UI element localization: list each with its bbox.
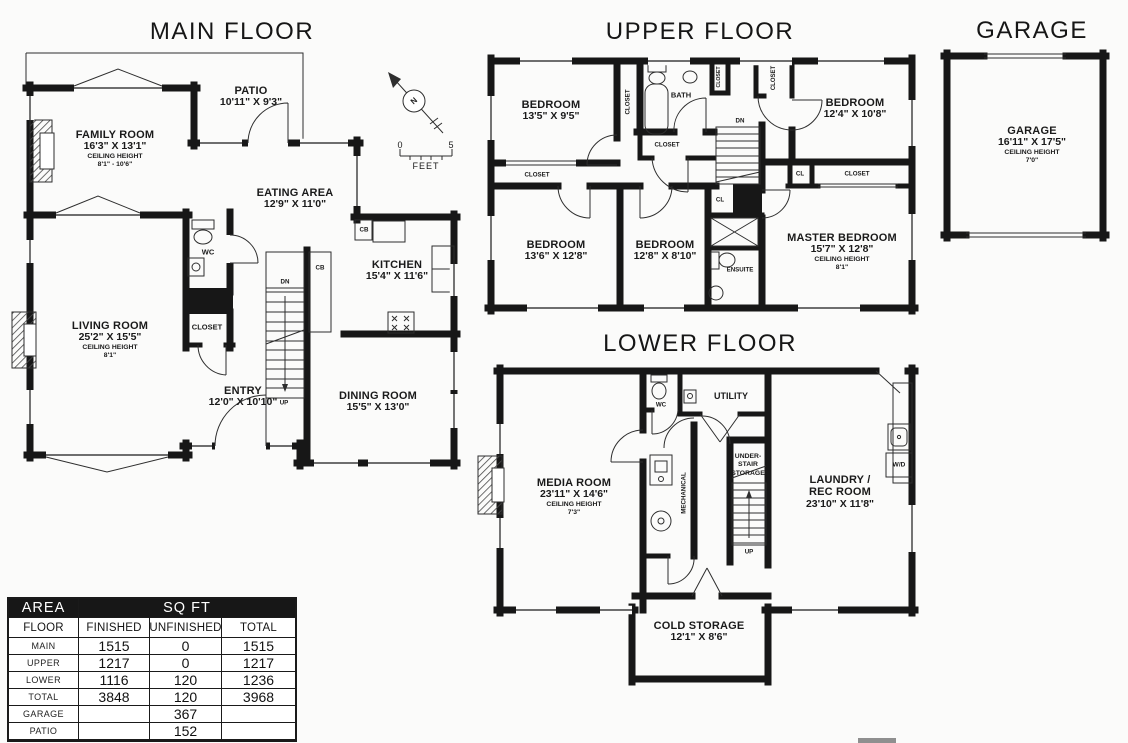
understair-storage-label: UNDER- STAIR STORAGE [731, 453, 765, 478]
wc-label: WC [202, 248, 215, 257]
lower-floor-title: LOWER FLOOR [603, 330, 797, 358]
media-room-fireplace [478, 456, 504, 514]
room-label-bedroom-4: BEDROOM 12'8" X 8'10" [634, 239, 697, 263]
room-dims: 16'11" X 17'5" [998, 137, 1066, 149]
column-header-unfinished: UNFINISHED [150, 618, 222, 638]
table-cell-floor: TOTAL [9, 689, 79, 706]
room-dims: 12'1" X 8'6" [654, 632, 745, 644]
table-cell-floor: GARAGE [9, 706, 79, 723]
room-label-cold-storage: COLD STORAGE 12'1" X 8'6" [654, 620, 745, 644]
room-dims: 12'9" X 11'0" [257, 199, 334, 211]
room-name: LAUNDRY / [806, 474, 874, 486]
table-cell-unfinished: 120 [150, 672, 222, 689]
living-room-fireplace [12, 312, 36, 368]
ceiling-height-value: 8'1" [72, 352, 148, 360]
ceiling-height-value: 8'1" - 10'6" [76, 161, 155, 169]
table-cell-finished: 1515 [79, 638, 150, 655]
room-dims: 12'4" X 10'8" [824, 109, 887, 121]
stairs-dn-label: DN [281, 279, 290, 286]
table-cell-floor: PATIO [9, 723, 79, 740]
table-cell-total [222, 706, 295, 723]
room-label-media-room: MEDIA ROOM 23'11" X 14'6" CEILING HEIGHT… [537, 477, 611, 516]
cb-label: CB [316, 265, 325, 272]
linen-closet [711, 218, 758, 246]
closet-label: CLOSET [844, 171, 869, 178]
room-dims: 23'11" X 14'6" [537, 489, 611, 501]
upper-floor-title: UPPER FLOOR [606, 18, 795, 46]
closet-label: CLOSET [625, 89, 632, 114]
room-dims: 10'11" X 9'3" [220, 97, 282, 109]
cl-label: CL [796, 171, 804, 178]
room-name: REC ROOM [806, 486, 874, 498]
room-dims: 16'3" X 13'1" [76, 141, 155, 153]
table-cell-finished: 3848 [79, 689, 150, 706]
ceiling-height-label: CEILING HEIGHT [72, 344, 148, 352]
scale-unit: FEET [412, 161, 439, 171]
table-cell-total: 1515 [222, 638, 295, 655]
room-label-kitchen: KITCHEN 15'4" X 11'6" [366, 259, 428, 283]
ceiling-height-value: 7'0" [998, 157, 1066, 165]
room-dims: 13'6" X 12'8" [525, 251, 588, 263]
room-label-bedroom-2: BEDROOM 12'4" X 10'8" [824, 97, 887, 121]
room-dims: 13'5" X 9'5" [522, 111, 581, 123]
table-cell-floor: LOWER [9, 672, 79, 689]
ceiling-height-label: CEILING HEIGHT [76, 153, 155, 161]
floor-plan-page: MAIN FLOOR UPPER FLOOR GARAGE LOWER FLOO… [0, 0, 1128, 743]
column-header-finished: FINISHED [79, 618, 150, 638]
column-header-floor: FLOOR [9, 618, 79, 638]
ceiling-height-value: 8'1" [787, 264, 897, 272]
table-cell-finished: 1116 [79, 672, 150, 689]
ceiling-height-label: CEILING HEIGHT [998, 149, 1066, 157]
room-label-family-room: FAMILY ROOM 16'3" X 13'1" CEILING HEIGHT… [76, 129, 155, 168]
table-header-area: AREA [9, 599, 79, 618]
family-room-fireplace [30, 120, 54, 182]
column-header-total: TOTAL [222, 618, 295, 638]
ceiling-height-value: 7'3" [537, 509, 611, 517]
room-dims: 12'0" X 10'10" [209, 397, 278, 409]
ensuite-fixtures [709, 252, 735, 300]
bath-label: BATH [671, 91, 691, 100]
closet-label: CLOSET [192, 323, 222, 332]
scan-artifact [858, 738, 896, 743]
table-cell-unfinished: 120 [150, 689, 222, 706]
table-header-sqft: SQ FT [79, 599, 295, 618]
scale-bar [400, 149, 452, 160]
main-floor-title: MAIN FLOOR [150, 18, 314, 46]
table-cell-finished: 1217 [79, 655, 150, 672]
closet-label: CLOSET [524, 172, 549, 179]
room-label-bedroom-1: BEDROOM 13'5" X 9'5" [522, 99, 581, 123]
closet-label: CLOSET [716, 66, 722, 87]
area-summary-table: AREA SQ FT FLOOR FINISHED UNFINISHED TOT… [7, 597, 297, 742]
room-label-laundry-rec-room: LAUNDRY / REC ROOM 23'10" X 11'8" [806, 474, 874, 510]
upper-stairs [716, 127, 760, 184]
label-line: STAIR [731, 461, 765, 469]
room-label-living-room: LIVING ROOM 25'2" X 15'5" CEILING HEIGHT… [72, 320, 148, 359]
lower-windows [500, 424, 912, 610]
table-cell-unfinished: 0 [150, 655, 222, 672]
room-dims: 15'4" X 11'6" [366, 271, 428, 283]
label-line: STORAGE [731, 470, 765, 478]
room-dims: 15'7" X 12'8" [787, 244, 897, 256]
table-cell-unfinished: 0 [150, 638, 222, 655]
wc-label: WC [656, 402, 666, 409]
table-cell-total: 1217 [222, 655, 295, 672]
garage-title: GARAGE [976, 17, 1088, 45]
cl-label: CL [716, 197, 724, 204]
utility-label: UTILITY [714, 391, 748, 401]
table-cell-unfinished: 367 [150, 706, 222, 723]
stairs-dn-label: DN [736, 118, 745, 125]
washer-dryer-label: W/D [893, 462, 906, 469]
table-cell-finished [79, 723, 150, 740]
room-label-eating-area: EATING AREA 12'9" X 11'0" [257, 187, 334, 211]
table-cell-unfinished: 152 [150, 723, 222, 740]
room-label-garage: GARAGE 16'11" X 17'5" CEILING HEIGHT 7'0… [998, 125, 1066, 164]
room-dims: 15'5" X 13'0" [339, 402, 417, 414]
room-dims: 12'8" X 8'10" [634, 251, 697, 263]
ceiling-height-label: CEILING HEIGHT [537, 501, 611, 509]
table-cell-total: 3968 [222, 689, 295, 706]
label-line: UNDER- [731, 453, 765, 461]
cb-label: CB [360, 227, 369, 234]
room-dims: 23'10" X 11'8" [806, 499, 874, 511]
room-dims: 25'2" X 15'5" [72, 332, 148, 344]
main-stairs [266, 252, 304, 398]
room-label-master-bedroom: MASTER BEDROOM 15'7" X 12'8" CEILING HEI… [787, 232, 897, 271]
room-label-bedroom-3: BEDROOM 13'6" X 12'8" [525, 239, 588, 263]
room-label-dining-room: DINING ROOM 15'5" X 13'0" [339, 390, 417, 414]
stairs-up-label: UP [280, 400, 289, 407]
closet-label: CLOSET [771, 66, 777, 90]
table-cell-floor: MAIN [9, 638, 79, 655]
stairs-up-label: UP [745, 549, 754, 556]
scale-zero: 0 [397, 140, 402, 150]
table-cell-floor: UPPER [9, 655, 79, 672]
lower-fixtures [650, 375, 696, 531]
ceiling-height-label: CEILING HEIGHT [787, 256, 897, 264]
room-label-patio: PATIO 10'11" X 9'3" [220, 85, 282, 109]
closet-label: CLOSET [654, 142, 679, 149]
mechanical-label: MECHANICAL [681, 472, 688, 514]
table-cell-finished [79, 706, 150, 723]
table-cell-total: 1236 [222, 672, 295, 689]
ensuite-label: ENSUITE [727, 267, 754, 274]
table-cell-total [222, 723, 295, 740]
room-label-entry: ENTRY 12'0" X 10'10" [209, 385, 278, 409]
scale-five: 5 [448, 140, 453, 150]
upper-floor-plan [488, 58, 915, 311]
